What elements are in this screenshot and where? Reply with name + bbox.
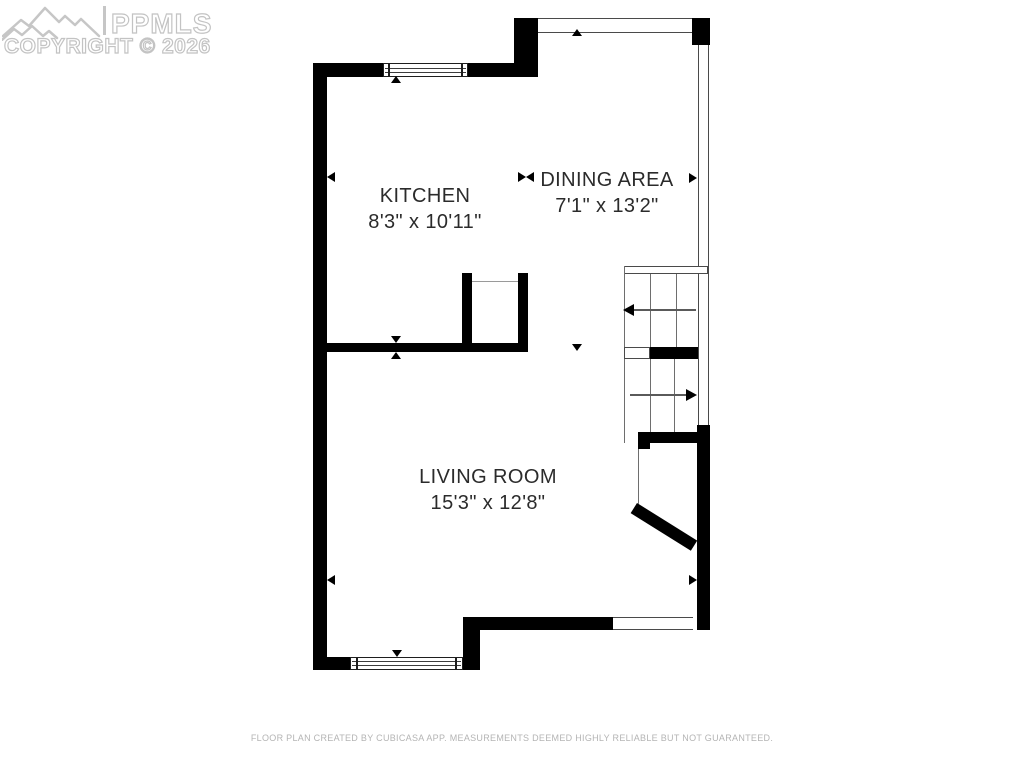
wall-top-stub [514, 18, 538, 77]
room-dimensions: 15'3" x 12'8" [419, 490, 557, 516]
measure-arrow-living-left-icon [327, 575, 335, 585]
measure-arrow-living-bottom-icon [392, 650, 402, 657]
window-pane-line [352, 665, 461, 666]
wall-kitchen-top-left [313, 63, 383, 77]
window-endcap [356, 658, 358, 669]
window-pane-line [352, 661, 461, 662]
window-pane-line [385, 68, 466, 69]
room-dimensions: 8'3" x 10'11" [368, 209, 481, 235]
understair-closet-line [638, 449, 639, 504]
window-endcap [461, 64, 463, 76]
stair-up-arrow-line [632, 309, 696, 311]
footer-disclaimer: FLOOR PLAN CREATED BY CUBICASA APP. MEAS… [0, 733, 1024, 743]
room-name: LIVING ROOM [419, 464, 557, 490]
stair-down-arrow-line [630, 394, 688, 396]
opening-bottom-right [613, 617, 693, 630]
wall-understair-diagonal [631, 503, 698, 551]
opening-dining-top [538, 18, 692, 33]
wall-left [313, 63, 327, 670]
window-endcap [455, 658, 457, 669]
measure-arrow-dining-right-icon [689, 173, 697, 183]
watermark: PPMLS COPYRIGHT © 2026 [0, 0, 230, 72]
wall-bottom-jog [463, 617, 480, 670]
window-kitchen [383, 63, 468, 77]
measure-arrow-living-top-icon [391, 352, 401, 359]
window-pane-line [385, 72, 466, 73]
room-label-dining-area: DINING AREA 7'1" x 13'2" [540, 167, 673, 219]
measure-arrow-living-right-icon [689, 575, 697, 585]
wall-closet-right [518, 273, 528, 352]
window-endcap [388, 64, 390, 76]
watermark-copyright: COPYRIGHT © 2026 [4, 35, 211, 59]
measure-arrow-kitchen-top-icon [391, 76, 401, 83]
wall-bottom-left [313, 657, 350, 670]
measure-arrow-kitchen-right-icon [518, 172, 526, 182]
wall-bottom-middle [480, 617, 613, 630]
room-name: KITCHEN [368, 183, 481, 209]
room-label-living-room: LIVING ROOM 15'3" x 12'8" [419, 464, 557, 516]
stair-top-edge [624, 266, 708, 274]
measure-arrow-dining-left-icon [526, 172, 534, 182]
room-name: DINING AREA [540, 167, 673, 193]
floor-plan-page: PPMLS COPYRIGHT © 2026 [0, 0, 1024, 767]
stair-down-arrow-icon [686, 389, 697, 401]
measure-arrow-kitchen-bottom-icon [391, 336, 401, 343]
wall-kitchen-living-divider [313, 343, 528, 352]
stair-up-arrow-icon [623, 304, 634, 316]
wall-closet-left [462, 273, 472, 343]
wall-stair-bottom-nub [638, 432, 650, 449]
wall-dining-top-right-stub [692, 18, 710, 45]
watermark-divider [103, 6, 106, 35]
measure-arrow-kitchen-left-icon [327, 172, 335, 182]
wall-right-lower [697, 425, 710, 630]
wall-right-thin [698, 45, 709, 425]
room-dimensions: 7'1" x 13'2" [540, 193, 673, 219]
stair-landing-step [624, 347, 650, 359]
closet-back-line [472, 281, 518, 282]
window-living-room [350, 657, 463, 670]
measure-arrow-dining-top-icon [572, 29, 582, 36]
room-label-kitchen: KITCHEN 8'3" x 10'11" [368, 183, 481, 235]
measure-arrow-dining-bottom-icon [572, 344, 582, 351]
